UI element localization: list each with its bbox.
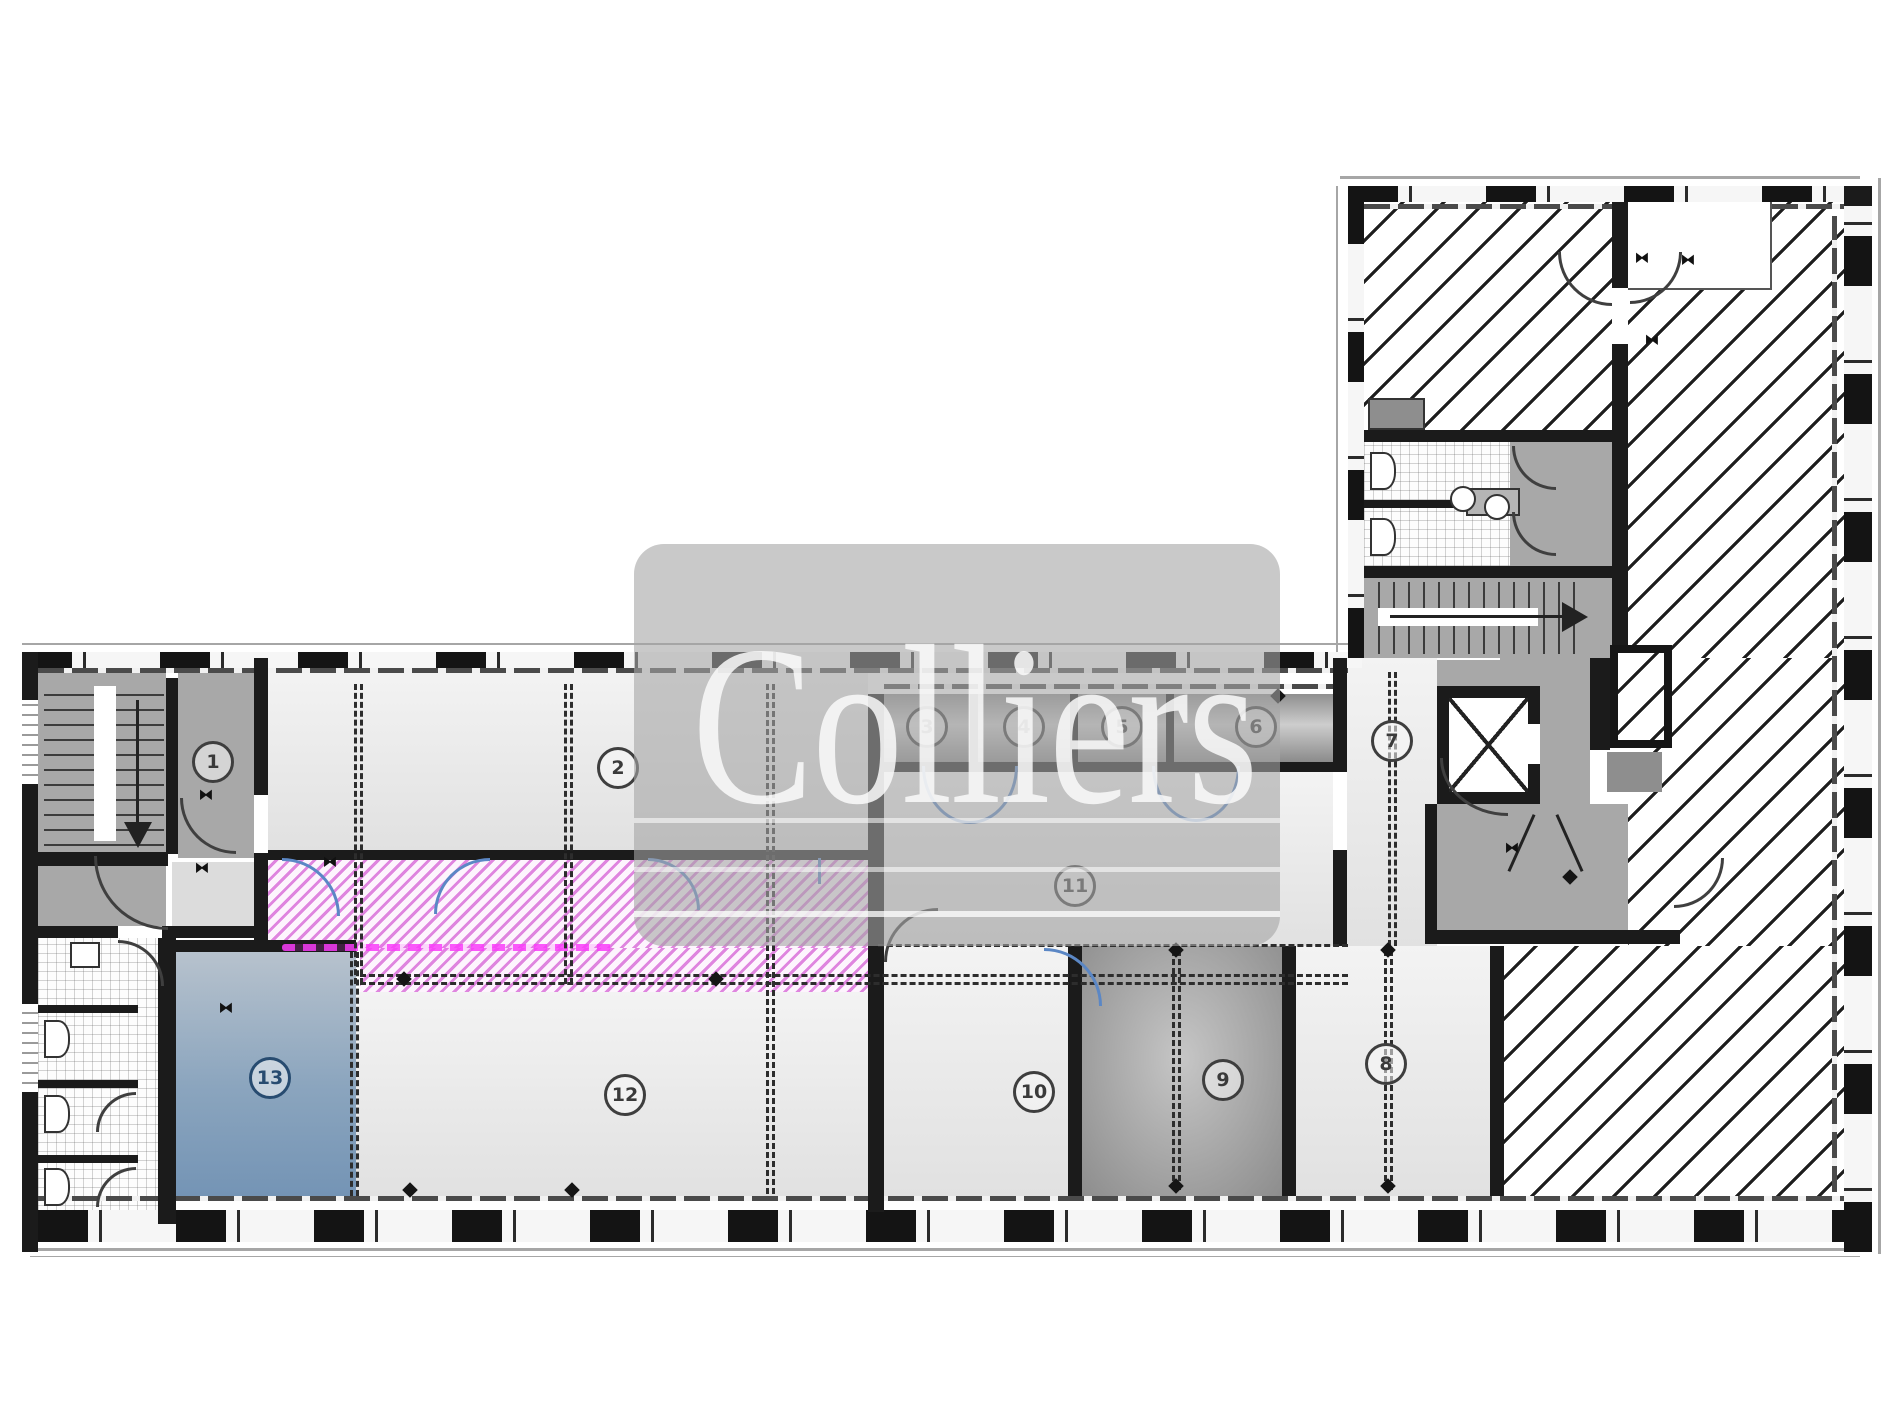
wall-wc-north-top [1364,430,1612,442]
partition-dashed-room13 [350,952,359,1196]
wall-wc-north-bottom [1364,566,1612,578]
sprinkler-icon: ⧓ [1645,333,1660,348]
wall-corridor-pink-west [254,862,268,952]
watermark-rule-2 [634,867,1280,872]
wc-toilet-2 [44,1095,70,1133]
partition-dashed-room7 [1388,672,1397,946]
stairs-main-gap [94,686,116,841]
room-12-badge: 12 [604,1074,646,1116]
sprinkler-icon: ⧓ [195,861,210,876]
sprinkler-icon: ⧓ [323,855,338,870]
sprinkler-icon: ⧓ [1681,253,1696,268]
wc-stall-wall-2 [38,1080,138,1088]
wall-room12-room10 [868,990,884,1212]
sprinkler-icon: ⧓ [219,1001,234,1016]
window-sill-band-bottom [38,1196,1856,1201]
exterior-wall-bottom [38,1210,1856,1242]
wc-toilet-3 [44,1168,70,1206]
room-7-number: 7 [1385,730,1398,752]
facade-line-right [1878,178,1881,1254]
corridor-highlight-hatch-lower [360,948,868,992]
existing-area-hatch-northwest [1364,202,1612,430]
window-left-2 [22,1004,38,1092]
room-2-badge: 2 [597,747,639,789]
room-10-badge: 10 [1013,1071,1055,1113]
wall-vestibule-south [1437,930,1680,944]
watermark-rule-3 [634,911,1280,917]
room-2-number: 2 [611,757,624,779]
window-left-1 [22,700,38,784]
corridor-boundary-dashed [360,974,1348,985]
exterior-wall-wing-top [1348,186,1858,202]
room-8-number: 8 [1379,1053,1392,1075]
stairs-main-arrow-stem [136,700,139,822]
partition-dashed-room9 [1172,950,1181,1190]
stairs-north-arrow-stem [1390,615,1562,618]
sprinkler-icon: ⧓ [199,788,214,803]
room-1-number: 1 [206,751,219,773]
wall-wing-divider [1612,202,1628,658]
corridor-annotation-illegible [282,944,612,951]
room-7-badge: 7 [1371,720,1413,762]
sprinkler-icon: ⧓ [1505,841,1520,856]
exterior-wall-wing-left [1348,202,1364,658]
room-9-badge: 9 [1202,1059,1244,1101]
window-sill-band-right [1832,216,1837,1192]
wc-toilet-1 [44,1020,70,1058]
room-1-badge: 1 [192,741,234,783]
stairs-main-arrow-head [124,822,152,848]
door-gap-wing-divider [1612,288,1628,344]
window-sill-band-wing-top [1364,204,1844,209]
room-13-number: 13 [257,1067,283,1089]
facade-line-wing-top [1340,176,1860,179]
wall-room8-hatch [1490,946,1504,1196]
service-shaft [1610,645,1672,748]
partition-dashed-1 [354,684,363,984]
room-10-number: 10 [1021,1081,1047,1103]
wc-stall-wall-3 [38,1155,138,1163]
wc-north-basin-2 [1484,494,1510,520]
floor-plan-canvas: ⧓ ⧓ ⧓ ⧓ ⧓ ⧓ ⧓ ⧓ 1 2 3 4 5 6 7 8 9 10 11 … [0,0,1900,1425]
wc-north-toilet-2 [1370,518,1396,556]
wc-stall-wall-1 [38,1005,138,1013]
wc-sink [70,942,100,968]
door-gap-room1 [254,795,268,853]
wall-room6-room7-lower [1333,850,1347,946]
room-9-number: 9 [1216,1069,1229,1091]
wall-room6-room7-upper [1333,658,1347,772]
entry-corridor-floor [172,862,254,926]
wc-north-toilet-1 [1370,452,1396,490]
facade-line-wing-left [1336,186,1338,658]
corner-pier-northeast [1844,186,1872,206]
wall-landing-east [1590,658,1610,750]
room-12-number: 12 [612,1084,638,1106]
facade-line-bottom-1 [30,1248,1860,1251]
wall-stair-room1 [166,678,178,854]
sprinkler-icon: ⧓ [1635,251,1650,266]
existing-area-hatch-southeast [1497,946,1844,1196]
counter-unit [1368,398,1425,430]
wall-vestibule-west [1425,804,1437,944]
service-shaft-hatch [1618,653,1664,740]
partition-dashed-2 [564,684,573,984]
exterior-wall-right [1844,186,1872,1252]
duct-box [1607,752,1662,792]
watermark-brand: Colliers [692,612,1257,840]
room-8-badge: 8 [1365,1043,1407,1085]
facade-line-bottom-2 [30,1256,1860,1257]
wc-north-basin-1 [1450,486,1476,512]
stairs-north-arrow-head [1562,602,1588,632]
elevator-lobby-strip [1437,660,1500,686]
elevator-door-gap [1528,724,1540,764]
room-13-badge: 13 [249,1057,291,1099]
